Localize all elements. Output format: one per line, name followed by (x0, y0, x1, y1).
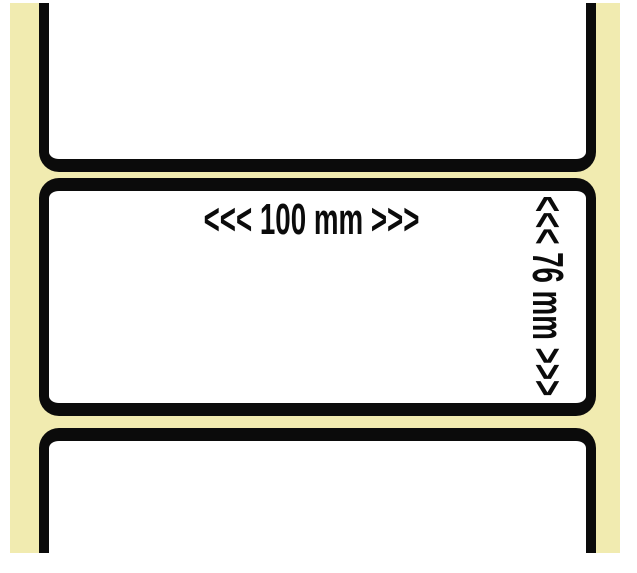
height-dimension-text: <<< 76 mm >>> (525, 196, 569, 396)
page: { "photo": { "liner_color": "#f1ebb0", "… (0, 0, 637, 573)
label-roll-liner: <<< 100 mm >>> <<< 76 mm >>> (10, 3, 620, 553)
blank-label-bottom (39, 428, 596, 553)
blank-label-top (39, 3, 596, 172)
width-dimension-text: <<< 100 mm >>> (146, 198, 477, 242)
label-with-dimensions: <<< 100 mm >>> <<< 76 mm >>> (39, 178, 596, 416)
